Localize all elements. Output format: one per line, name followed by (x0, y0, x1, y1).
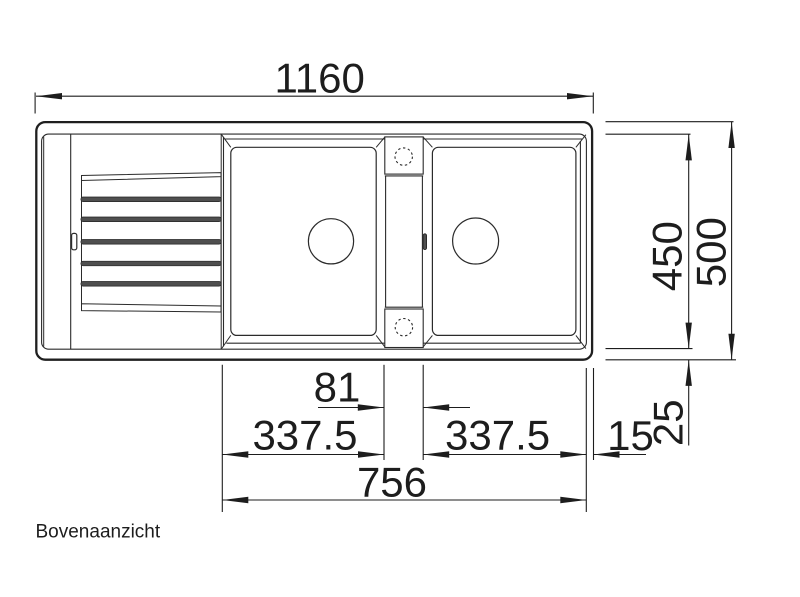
svg-text:337.5: 337.5 (252, 411, 357, 458)
svg-text:Bovenaanzicht: Bovenaanzicht (36, 522, 161, 543)
svg-text:15: 15 (607, 412, 654, 459)
svg-text:81: 81 (314, 363, 361, 410)
svg-text:337.5: 337.5 (445, 411, 550, 458)
svg-text:756: 756 (357, 459, 427, 506)
svg-text:500: 500 (688, 217, 735, 287)
svg-text:1160: 1160 (275, 55, 365, 102)
svg-text:450: 450 (644, 221, 691, 291)
